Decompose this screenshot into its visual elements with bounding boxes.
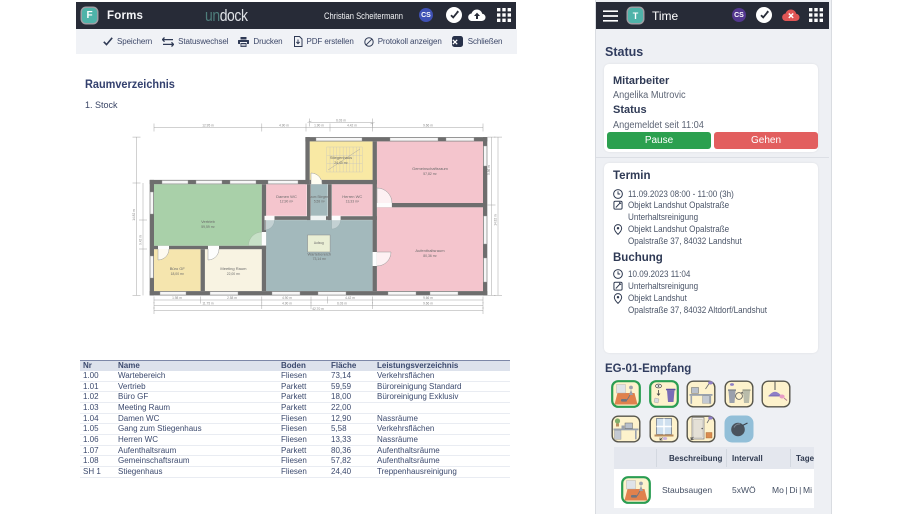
svg-text:2.58 m: 2.58 m — [227, 296, 237, 300]
svg-text:4.90 m: 4.90 m — [282, 302, 292, 306]
svg-text:11.75 m: 11.75 m — [202, 302, 214, 306]
svg-text:12.95 m: 12.95 m — [202, 123, 214, 127]
svg-text:Gemeinschaftsraum: Gemeinschaftsraum — [412, 166, 448, 171]
svg-text:12,90 m²: 12,90 m² — [280, 200, 294, 204]
svg-text:Wartebereich: Wartebereich — [307, 252, 331, 257]
svg-text:6.03 m: 6.03 m — [337, 302, 347, 306]
svg-text:1.98 m: 1.98 m — [172, 296, 182, 300]
svg-text:Damen WC: Damen WC — [276, 194, 297, 199]
svg-text:zum Stiegen: zum Stiegen — [310, 195, 328, 199]
svg-text:6.03 m: 6.03 m — [336, 118, 346, 122]
svg-text:5,58 m²: 5,58 m² — [314, 200, 325, 204]
svg-text:Stiegenhaus: Stiegenhaus — [330, 155, 352, 160]
svg-text:Aufzug: Aufzug — [314, 241, 324, 245]
svg-text:4.42 m: 4.42 m — [347, 123, 357, 127]
svg-text:57,82 m²: 57,82 m² — [423, 172, 437, 176]
svg-text:14.82 m: 14.82 m — [494, 214, 498, 226]
svg-text:22,00 m²: 22,00 m² — [227, 272, 241, 276]
svg-text:Aufenthaltsraum: Aufenthaltsraum — [415, 248, 445, 253]
svg-text:9.66 m: 9.66 m — [423, 302, 433, 306]
svg-text:14.82 m: 14.82 m — [132, 209, 136, 221]
svg-text:13,33 m²: 13,33 m² — [346, 200, 360, 204]
svg-text:Herren WC: Herren WC — [342, 194, 362, 199]
svg-text:5.86 m: 5.86 m — [487, 165, 491, 175]
svg-text:59,59 m²: 59,59 m² — [201, 225, 215, 229]
svg-text:80,36 m²: 80,36 m² — [423, 254, 437, 258]
svg-text:4.42 m: 4.42 m — [345, 296, 355, 300]
svg-text:4.90 m: 4.90 m — [282, 296, 292, 300]
svg-text:9.66 m: 9.66 m — [423, 296, 433, 300]
svg-text:24,40 m²: 24,40 m² — [334, 161, 348, 165]
svg-text:Büro GF: Büro GF — [170, 266, 186, 271]
svg-text:9.66 m: 9.66 m — [423, 123, 433, 127]
svg-text:42.70 m: 42.70 m — [312, 307, 324, 311]
svg-text:4.90 m: 4.90 m — [279, 123, 289, 127]
svg-text:1.90 m: 1.90 m — [314, 123, 324, 127]
svg-text:18,00 m²: 18,00 m² — [171, 272, 185, 276]
svg-text:Meeting Raum: Meeting Raum — [220, 266, 247, 271]
svg-text:Vertrieb: Vertrieb — [201, 219, 216, 224]
svg-text:9.42 m: 9.42 m — [139, 235, 143, 245]
svg-text:73,14 m²: 73,14 m² — [313, 257, 327, 261]
